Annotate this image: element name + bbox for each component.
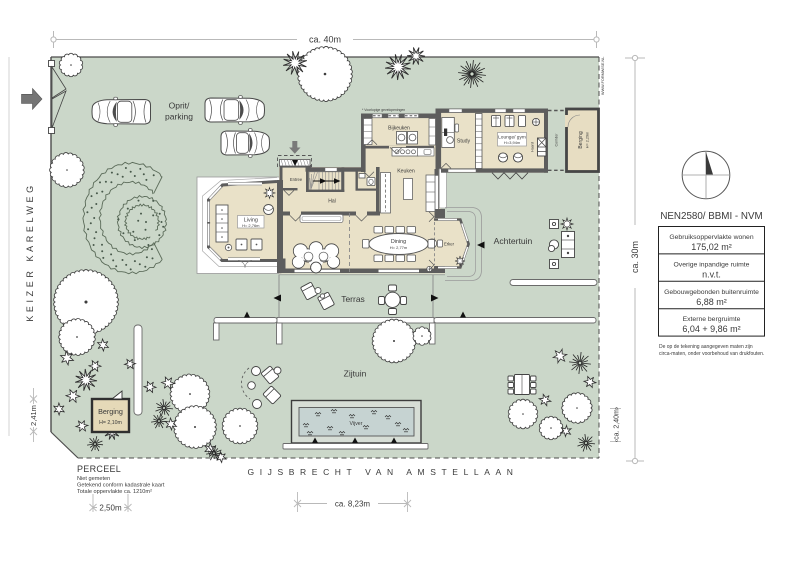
svg-text:ca. 8,23m: ca. 8,23m — [335, 500, 370, 509]
svg-text:* Voorlopige gevelopeningen: * Voorlopige gevelopeningen — [362, 108, 405, 112]
svg-text:‹ca. 2,40m›: ‹ca. 2,40m› — [614, 406, 621, 442]
svg-text:GIJSBRECHT VAN AMSTELLAAN: GIJSBRECHT VAN AMSTELLAAN — [248, 467, 519, 477]
svg-text:Entree: Entree — [290, 177, 303, 182]
svg-text:Study: Study — [457, 139, 471, 145]
svg-text:Gebouwgebonden buitenruimte: Gebouwgebonden buitenruimte — [664, 289, 759, 296]
svg-text:Corridor: Corridor — [555, 133, 559, 147]
svg-text:Niet gemeten: Niet gemeten — [77, 476, 110, 482]
svg-text:n.v.t.: n.v.t. — [702, 269, 721, 279]
svg-text:6,04 + 9,86 m²: 6,04 + 9,86 m² — [682, 324, 740, 334]
svg-text:Getekend conform kadastrale ka: Getekend conform kadastrale kaart — [77, 483, 165, 489]
svg-text:Berging: Berging — [578, 131, 584, 148]
svg-text:WWW.FORMWISE.NL: WWW.FORMWISE.NL — [601, 57, 605, 95]
svg-text:Zijtuin: Zijtuin — [344, 369, 367, 379]
svg-text:2,50m: 2,50m — [99, 504, 122, 513]
svg-text:Haard: Haard — [531, 142, 535, 152]
svg-text:Bijkeuken: Bijkeuken — [388, 126, 410, 132]
svg-text:Hal: Hal — [328, 199, 336, 205]
svg-text:circa-maten, onder voorbehoud: circa-maten, onder voorbehoud van drukfo… — [659, 351, 764, 357]
svg-text:H= 2,29m: H= 2,29m — [586, 132, 590, 149]
svg-text:Externe bergruimte: Externe bergruimte — [683, 316, 741, 323]
svg-text:ca. 40m: ca. 40m — [309, 35, 341, 45]
svg-text:ca. 30m: ca. 30m — [630, 241, 640, 273]
svg-text:Achtertuin: Achtertuin — [494, 236, 533, 246]
svg-text:Terras: Terras — [341, 294, 365, 304]
svg-text:Oprit/: Oprit/ — [169, 101, 190, 111]
svg-text:Overige inpandige ruimte: Overige inpandige ruimte — [674, 261, 750, 268]
svg-text:175,02 m²: 175,02 m² — [691, 242, 732, 252]
svg-text:NEN2580/ BBMI - NVM: NEN2580/ BBMI - NVM — [660, 211, 762, 222]
svg-text:H= 2,76m: H= 2,76m — [242, 223, 260, 228]
svg-text:Keuken: Keuken — [397, 169, 415, 175]
svg-text:Totale oppervlakte ca. 1210m²: Totale oppervlakte ca. 1210m² — [77, 489, 152, 495]
svg-text:H= 2,77m: H= 2,77m — [390, 245, 408, 250]
svg-text:De op de tekening aangegeven m: De op de tekening aangegeven maten zijn — [659, 344, 753, 350]
svg-text:Gebruiksoppervlakte wonen: Gebruiksoppervlakte wonen — [669, 234, 753, 241]
svg-text:parking: parking — [165, 112, 193, 122]
svg-text:6,88 m²: 6,88 m² — [696, 297, 727, 307]
svg-text:Berging: Berging — [98, 407, 123, 416]
svg-text:PERCEEL: PERCEEL — [77, 464, 121, 474]
svg-text:2,41m: 2,41m — [29, 405, 38, 426]
svg-text:H= 2,10m: H= 2,10m — [99, 420, 122, 426]
svg-text:Erker: Erker — [444, 242, 455, 247]
svg-text:H =3,94m: H =3,94m — [504, 140, 520, 145]
svg-text:Vijver: Vijver — [350, 421, 363, 427]
svg-text:KEIZER KARELWEG: KEIZER KARELWEG — [25, 182, 35, 321]
